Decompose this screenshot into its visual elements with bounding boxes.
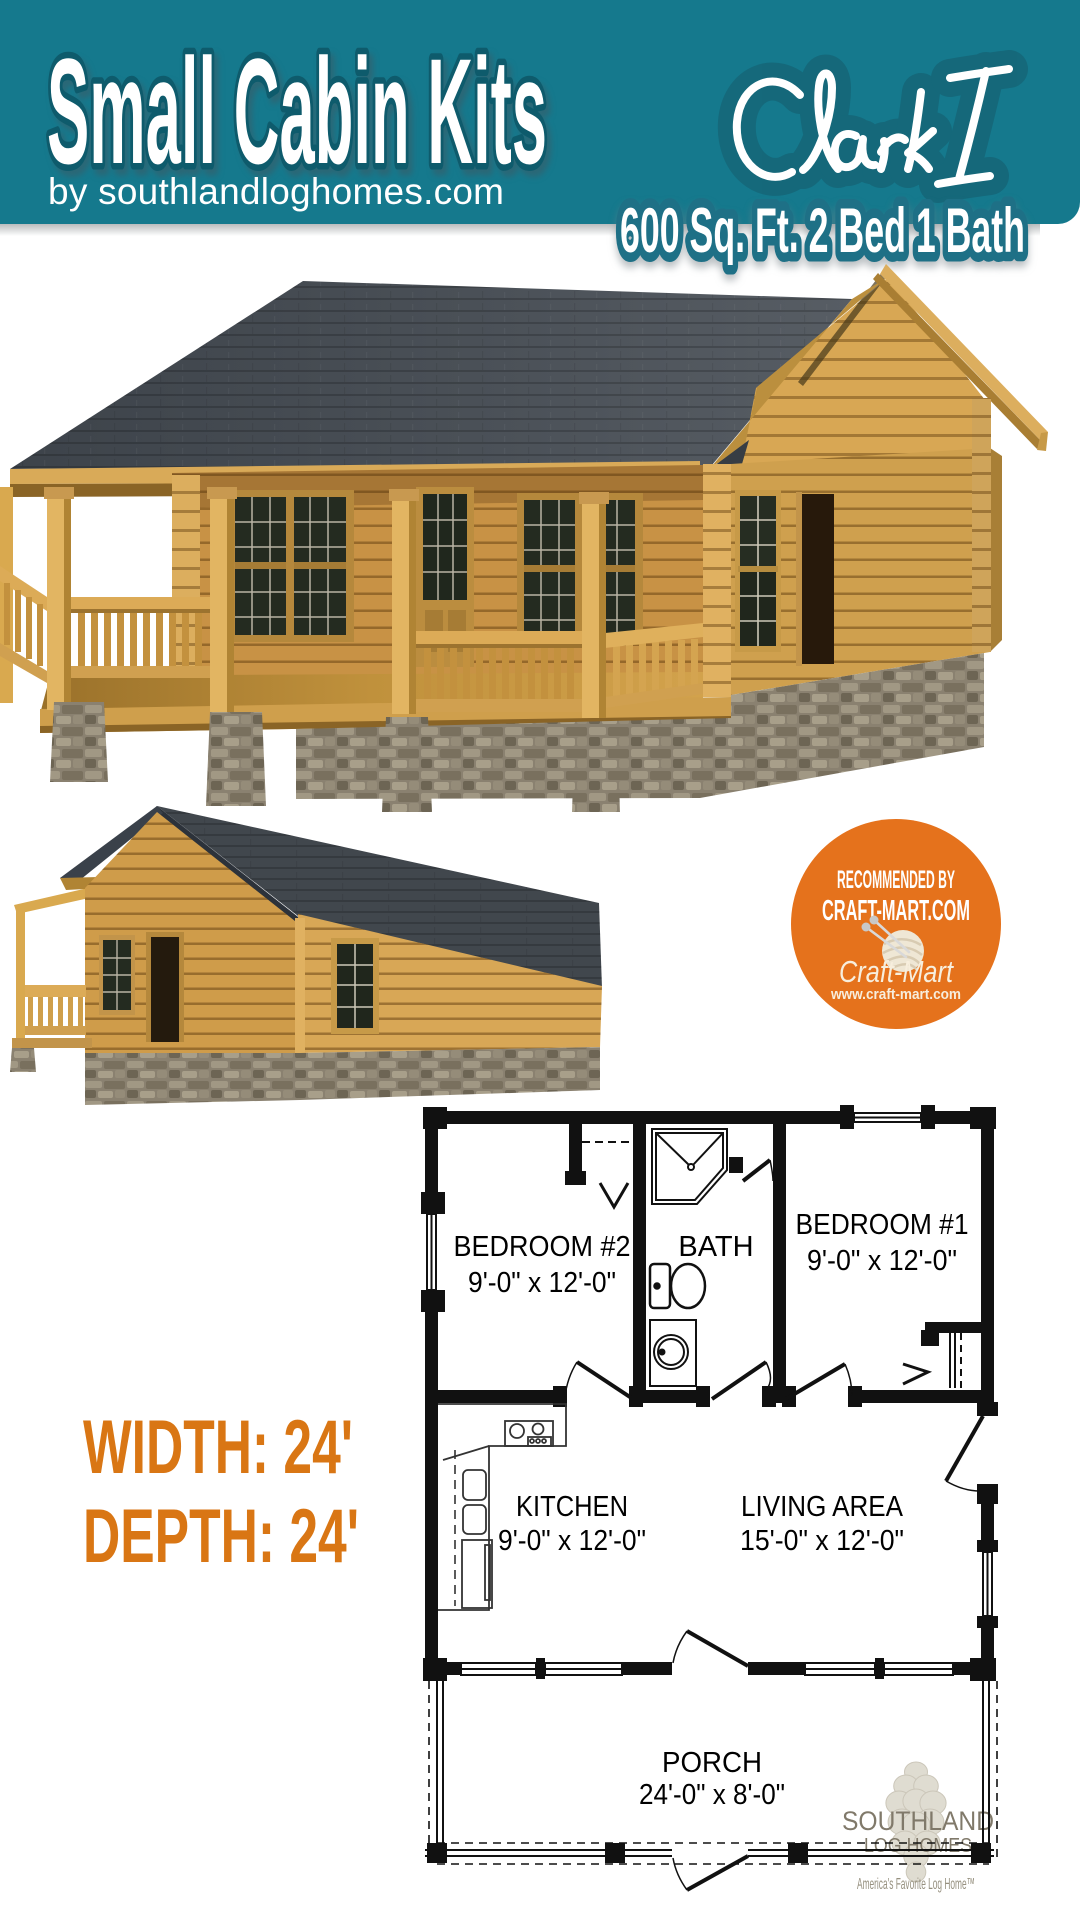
- svg-text:PORCH: PORCH: [662, 1747, 762, 1779]
- svg-text:KITCHEN: KITCHEN: [516, 1491, 628, 1523]
- svg-text:RECOMMENDED BY: RECOMMENDED BY: [837, 866, 955, 894]
- svg-text:BATH: BATH: [678, 1231, 753, 1263]
- svg-text:9'-0" x 12'-0": 9'-0" x 12'-0": [468, 1267, 616, 1299]
- svg-text:LIVING AREA: LIVING AREA: [741, 1491, 904, 1523]
- svg-text:CRAFT-MART.COM: CRAFT-MART.COM: [822, 895, 970, 927]
- svg-text:DEPTH: 24': DEPTH: 24': [83, 1494, 359, 1579]
- svg-text:www.craft-mart.com: www.craft-mart.com: [830, 986, 961, 1003]
- svg-text:WIDTH: 24': WIDTH: 24': [83, 1405, 353, 1490]
- svg-text:Craft-Mart: Craft-Mart: [839, 954, 954, 989]
- svg-text:BEDROOM #2: BEDROOM #2: [454, 1231, 631, 1263]
- svg-text:BEDROOM #1: BEDROOM #1: [796, 1209, 969, 1241]
- svg-text:15'-0" x 12'-0": 15'-0" x 12'-0": [740, 1525, 904, 1557]
- svg-text:9'-0" x 12'-0": 9'-0" x 12'-0": [498, 1525, 646, 1557]
- svg-text:9'-0" x 12'-0": 9'-0" x 12'-0": [807, 1245, 957, 1277]
- svg-text:24'-0" x 8'-0": 24'-0" x 8'-0": [639, 1779, 785, 1811]
